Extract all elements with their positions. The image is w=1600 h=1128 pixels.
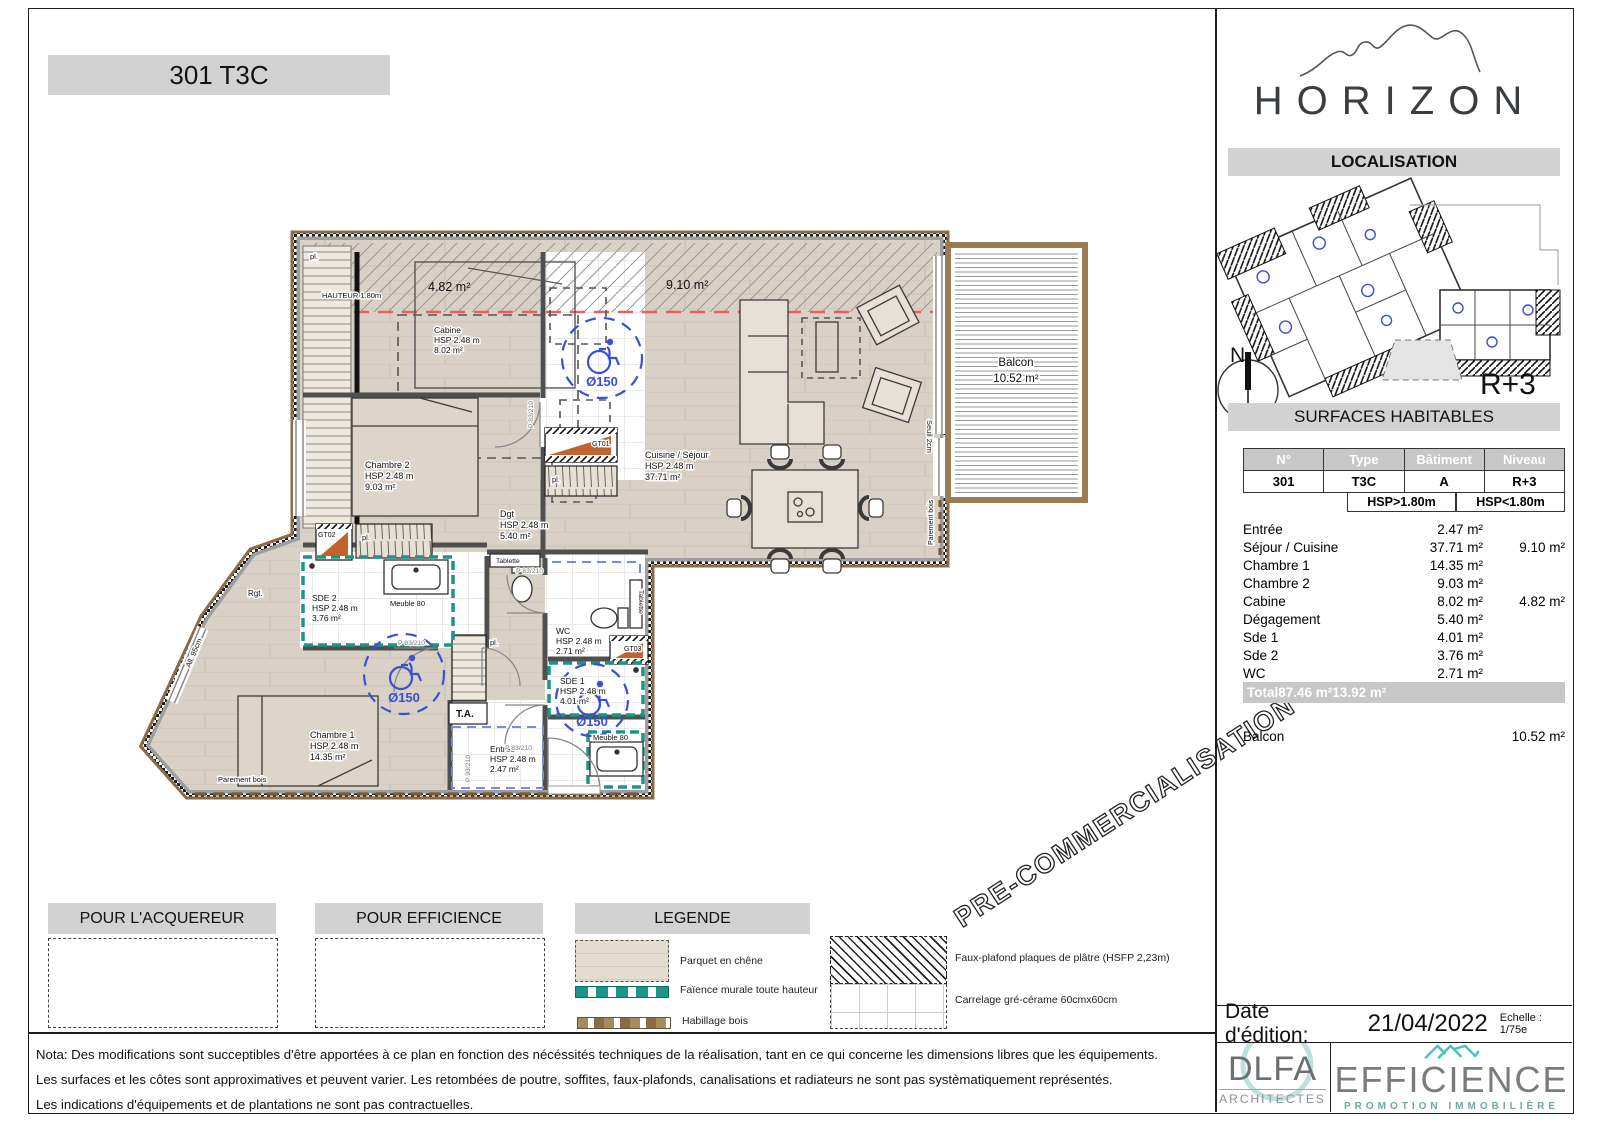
diam-label-1: Ø150 — [586, 374, 618, 389]
room-label-cabine: Cabine — [434, 325, 461, 335]
nota-line: Les indications d'équipements et de plan… — [36, 1092, 1206, 1117]
table-row: Entrée2.47 m² — [1243, 520, 1565, 538]
table-row: Cabine8.02 m²4.82 m² — [1243, 592, 1565, 610]
gt02-label: GT02 — [318, 532, 336, 539]
legend-item: Parquet en chêne — [680, 955, 763, 967]
acquereur-box — [48, 938, 278, 1028]
dlfa-logo-box: DLFA ARCHITECTES — [1215, 1043, 1331, 1112]
pl-label-4: pl. — [490, 638, 498, 647]
svg-text:P 83/210: P 83/210 — [398, 640, 425, 647]
apartment-plan: Ø150 Ø150 Ø150 4.82 m — [150, 240, 1085, 794]
legend-swatch-habillage — [577, 1017, 671, 1029]
meuble80-label-2: Meuble 80 — [593, 733, 628, 742]
pl-label-3: pl. — [552, 475, 560, 484]
legend-item: Faux-plafond plaques de plâtre (HSFP 2,2… — [955, 952, 1170, 964]
compass-north-label: N — [1230, 344, 1245, 367]
gt01-label: GT01 — [592, 441, 610, 448]
legende-header: LEGENDE — [575, 903, 810, 934]
low-ceiling-zone — [303, 243, 937, 312]
dlfa-name: DLFA — [1228, 1050, 1317, 1089]
room-label-sejour: Cuisine / Séjour — [645, 450, 709, 460]
room-label-sde2: SDE 2 — [312, 593, 337, 603]
table-row: Sde 14.01 m² — [1243, 628, 1565, 646]
date-label: Date d'édition: — [1225, 1000, 1358, 1048]
legend-item: Habillage bois — [682, 1015, 748, 1027]
balcon-area: 10.52 m² — [993, 373, 1039, 385]
tablette-label-1: Tablette — [496, 558, 520, 565]
nota-line: Nota: Des modifications sont succeptible… — [36, 1042, 1206, 1067]
room-label-chambre2: Chambre 2 — [365, 460, 410, 470]
room-label-wc: WC — [556, 626, 570, 636]
gt03-label: GT03 — [624, 646, 642, 653]
surfaces-rows: Entrée2.47 m² Séjour / Cuisine37.71 m²9.… — [1243, 520, 1565, 682]
horizon-wordmark: HORIZON — [1225, 79, 1565, 124]
parement-bottom-label: Parement bois — [218, 775, 267, 784]
diam-label-3: Ø150 — [576, 714, 608, 729]
plan-sheet: 301 T3C — [0, 0, 1600, 1128]
horizon-mountain-icon — [1225, 18, 1565, 80]
efficience-header: POUR EFFICIENCE — [315, 903, 543, 934]
legend-swatch-carrelage — [830, 984, 947, 1029]
efficience-mountain-icon — [1412, 1043, 1492, 1059]
table-row: WC2.71 m² — [1243, 664, 1565, 682]
svg-text:P 93/210: P 93/210 — [465, 755, 472, 782]
rgt-label: Rgt. — [248, 589, 263, 598]
nota-separator — [28, 1032, 1215, 1034]
scale-label: Echelle : 1/75e — [1500, 1012, 1572, 1036]
acquereur-header: POUR L'ACQUEREUR — [48, 903, 276, 934]
svg-text:P 83/210: P 83/210 — [528, 401, 535, 428]
svg-text:P 83/210: P 83/210 — [505, 745, 532, 752]
efficience-sub: PROMOTION IMMOBILIÈRE — [1344, 1101, 1559, 1112]
room-label-dgt: Dgt — [500, 509, 515, 519]
seuil-label: Seuil 2cm — [925, 420, 934, 453]
legend-item: Faïence murale toute hauteur — [680, 984, 818, 996]
table-row: Chambre 29.03 m² — [1243, 574, 1565, 592]
nota-line: Les surfaces et les côtes sont approxima… — [36, 1067, 1206, 1092]
efficience-logo-box: EFFICIENCE PROMOTION IMMOBILIÈRE — [1331, 1043, 1572, 1112]
pl-label-1: pl. — [310, 252, 318, 261]
dlfa-sub: ARCHITECTES — [1219, 1089, 1326, 1106]
meuble80-label-1: Meuble 80 — [390, 599, 425, 608]
hsp-header-row: HSP>1.80m HSP<1.80m — [1243, 493, 1565, 512]
gt01-block — [545, 428, 617, 496]
legend-swatch-fauxplafond — [830, 936, 947, 984]
efficience-box — [315, 938, 545, 1028]
horizon-logo: HORIZON — [1225, 18, 1565, 138]
nota-block: Nota: Des modifications sont succeptible… — [36, 1042, 1206, 1117]
hauteur-label: HAUTEUR 1.80m — [322, 291, 381, 300]
efficience-name: EFFICIENCE — [1334, 1059, 1568, 1101]
localisation-header: LOCALISATION — [1228, 148, 1560, 176]
legend-item: Carrelage gré-cérame 60cmx60cm — [955, 994, 1117, 1006]
total-row: Total 87.46 m² 13.92 m² — [1243, 682, 1565, 703]
legend-swatch-parquet — [575, 940, 669, 982]
legend-swatch-faience — [575, 986, 669, 998]
date-value: 21/04/2022 — [1368, 1010, 1488, 1038]
tablette-label-2: Tablette — [637, 590, 644, 614]
parement-right-label: Parement bois — [928, 499, 935, 545]
table-row: Séjour / Cuisine37.71 m²9.10 m² — [1243, 538, 1565, 556]
table-row: Dégagement5.40 m² — [1243, 610, 1565, 628]
zone-sejour-area: 9.10 m² — [666, 278, 708, 292]
ta-label: T.A. — [456, 709, 474, 720]
room-label-sde1: SDE 1 — [560, 676, 585, 686]
surfaces-table: N° Type Bâtiment Niveau 301 T3C A R+3 HS… — [1243, 448, 1565, 745]
right-panel-divider — [1215, 8, 1217, 1112]
table-row: Chambre 114.35 m² — [1243, 556, 1565, 574]
level-label: R+3 — [1480, 368, 1536, 402]
balcon-label: Balcon — [998, 357, 1033, 369]
date-row: Date d'édition: 21/04/2022 Echelle : 1/7… — [1215, 1005, 1572, 1043]
diam-label-2: Ø150 — [388, 690, 420, 705]
pl-label-2: pl. — [362, 533, 370, 542]
surfaces-table-unit-row: 301 T3C A R+3 — [1243, 471, 1565, 493]
surfaces-header: SURFACES HABITABLES — [1228, 403, 1560, 431]
zone-cabine-area: 4.82 m² — [428, 280, 470, 294]
room-label-chambre1: Chambre 1 — [310, 730, 355, 740]
surfaces-table-header: N° Type Bâtiment Niveau — [1243, 448, 1565, 471]
gt02-block — [316, 524, 352, 560]
svg-text:P 83/210: P 83/210 — [516, 568, 543, 575]
table-row: Sde 23.76 m² — [1243, 646, 1565, 664]
balcon-row: Balcon 10.52 m² — [1243, 727, 1565, 745]
